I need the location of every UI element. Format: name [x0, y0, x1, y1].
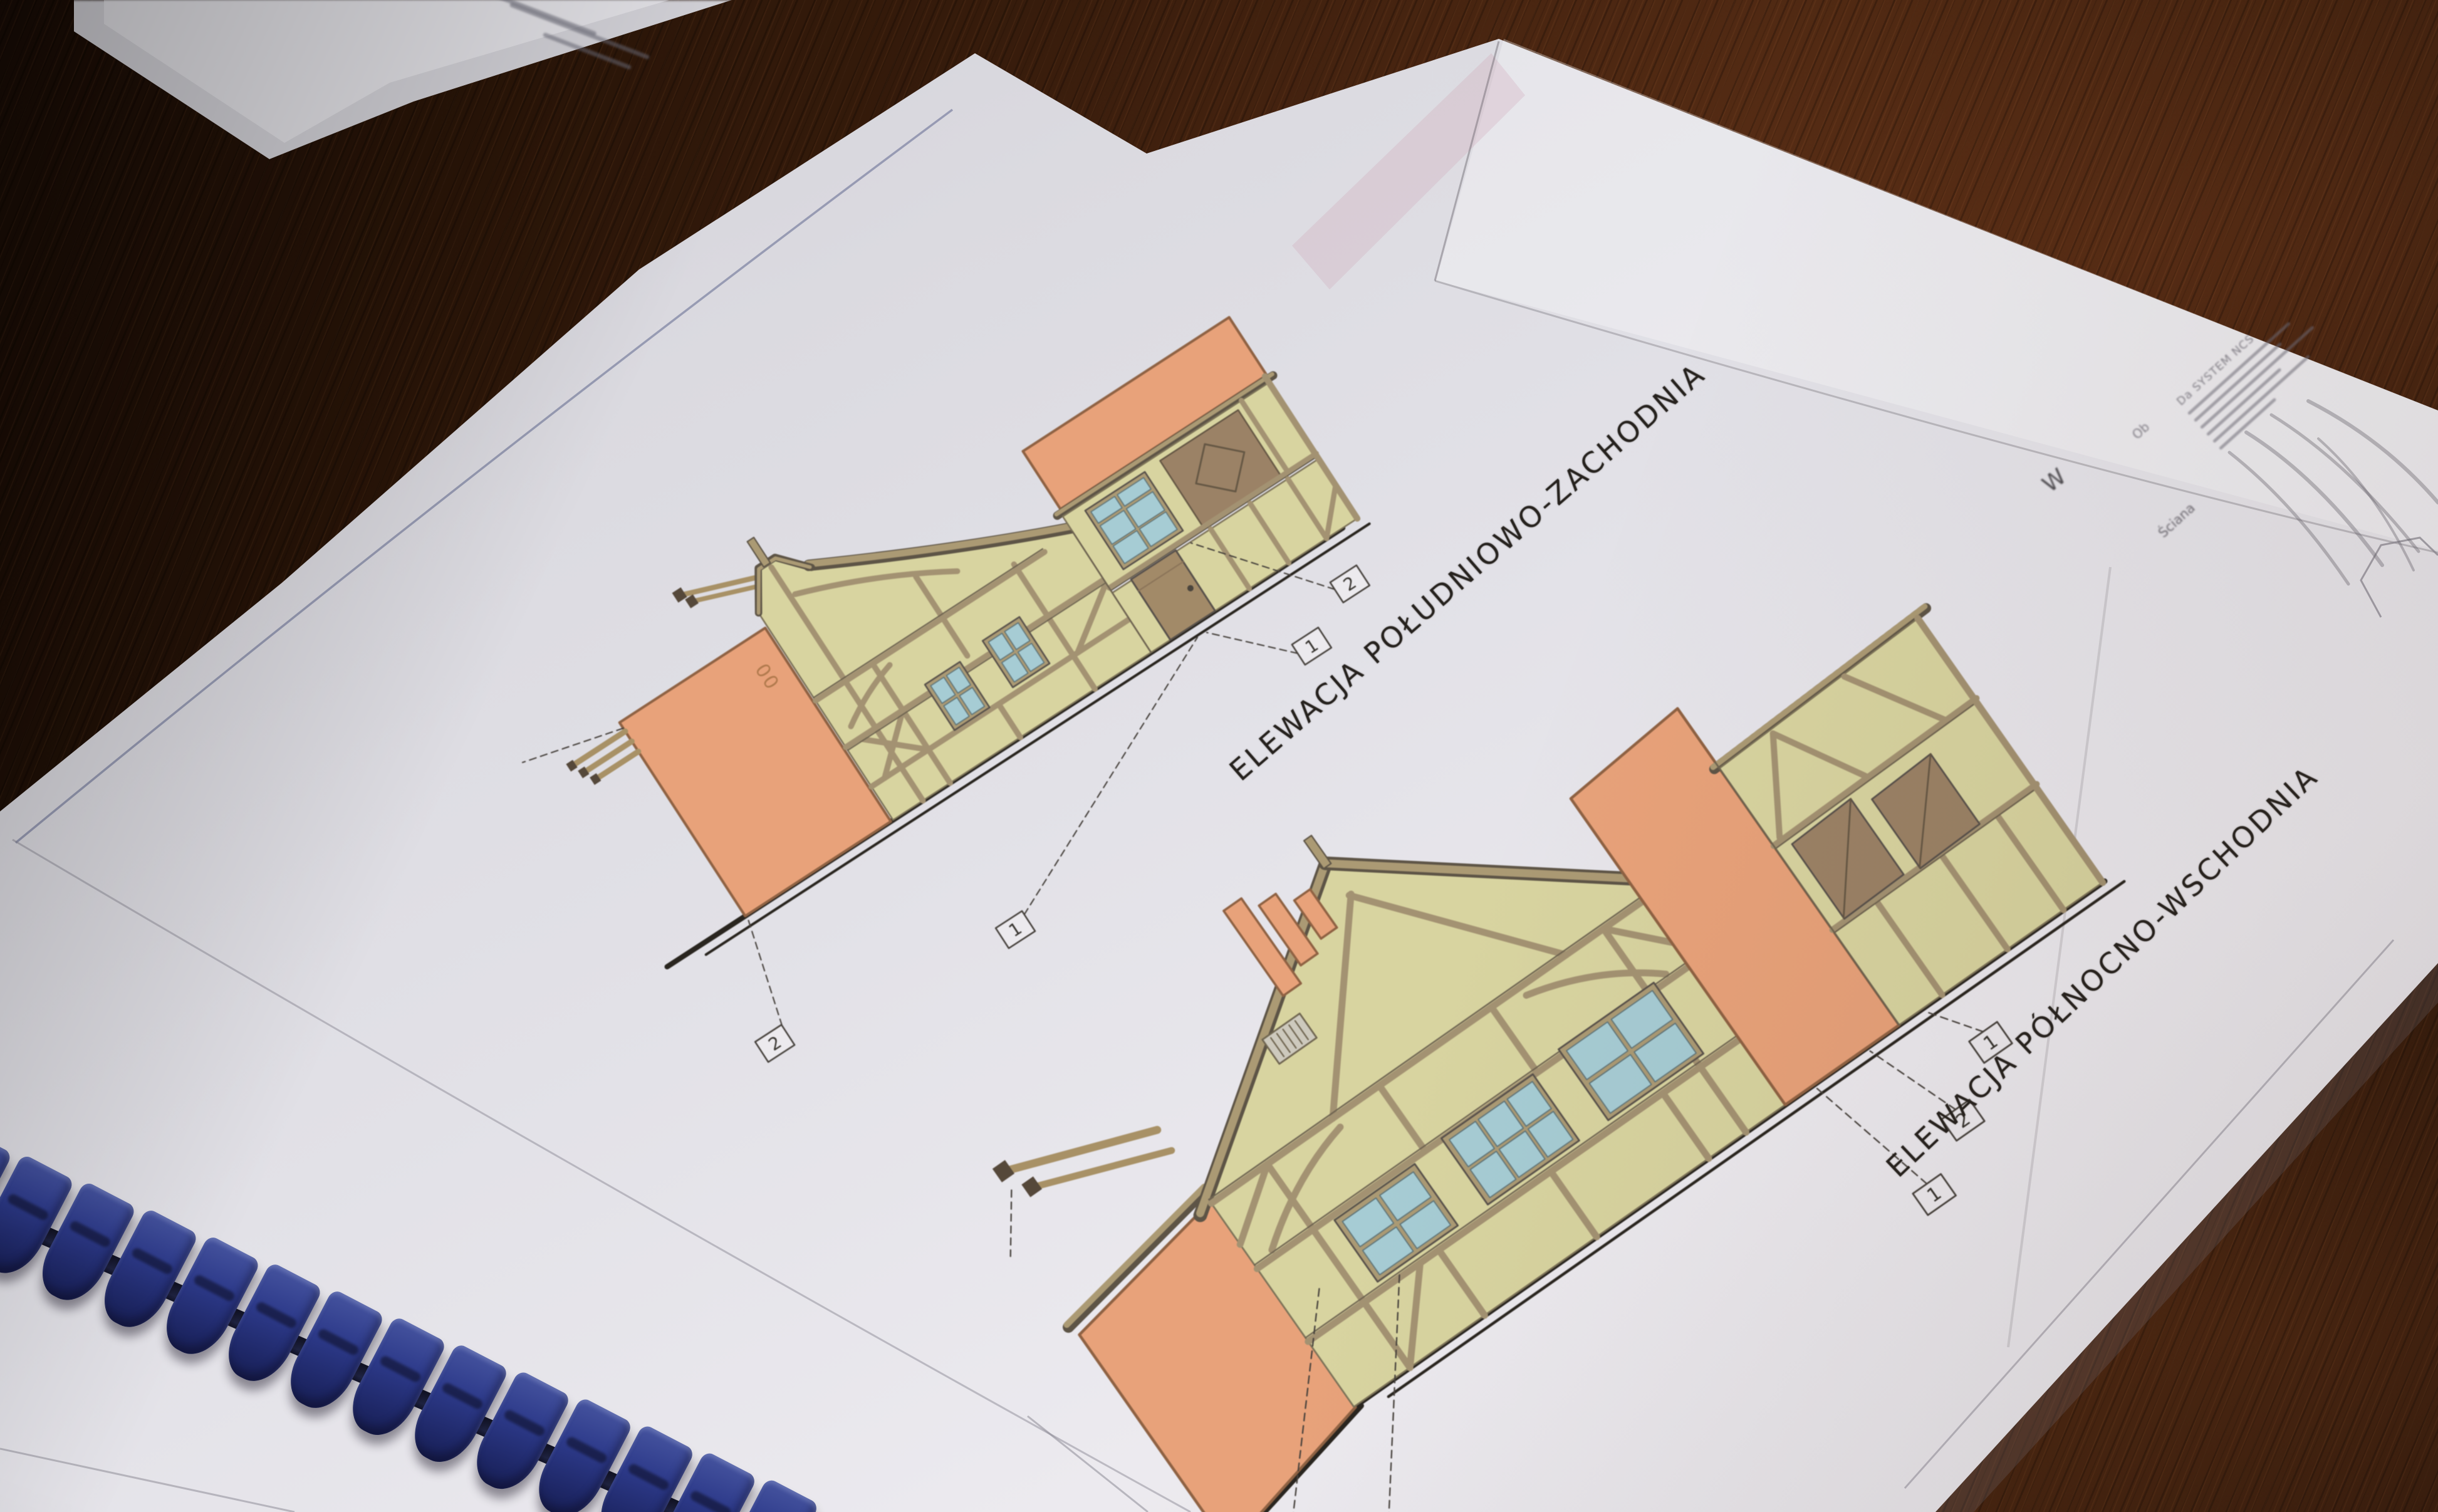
leader-line — [722, 916, 808, 1026]
purlin-beams — [964, 1078, 1172, 1261]
leader-line — [1207, 597, 1298, 689]
photo-scene: 00 — [0, 0, 2438, 1512]
finial-post — [1304, 835, 1331, 868]
finial-post — [748, 538, 771, 567]
